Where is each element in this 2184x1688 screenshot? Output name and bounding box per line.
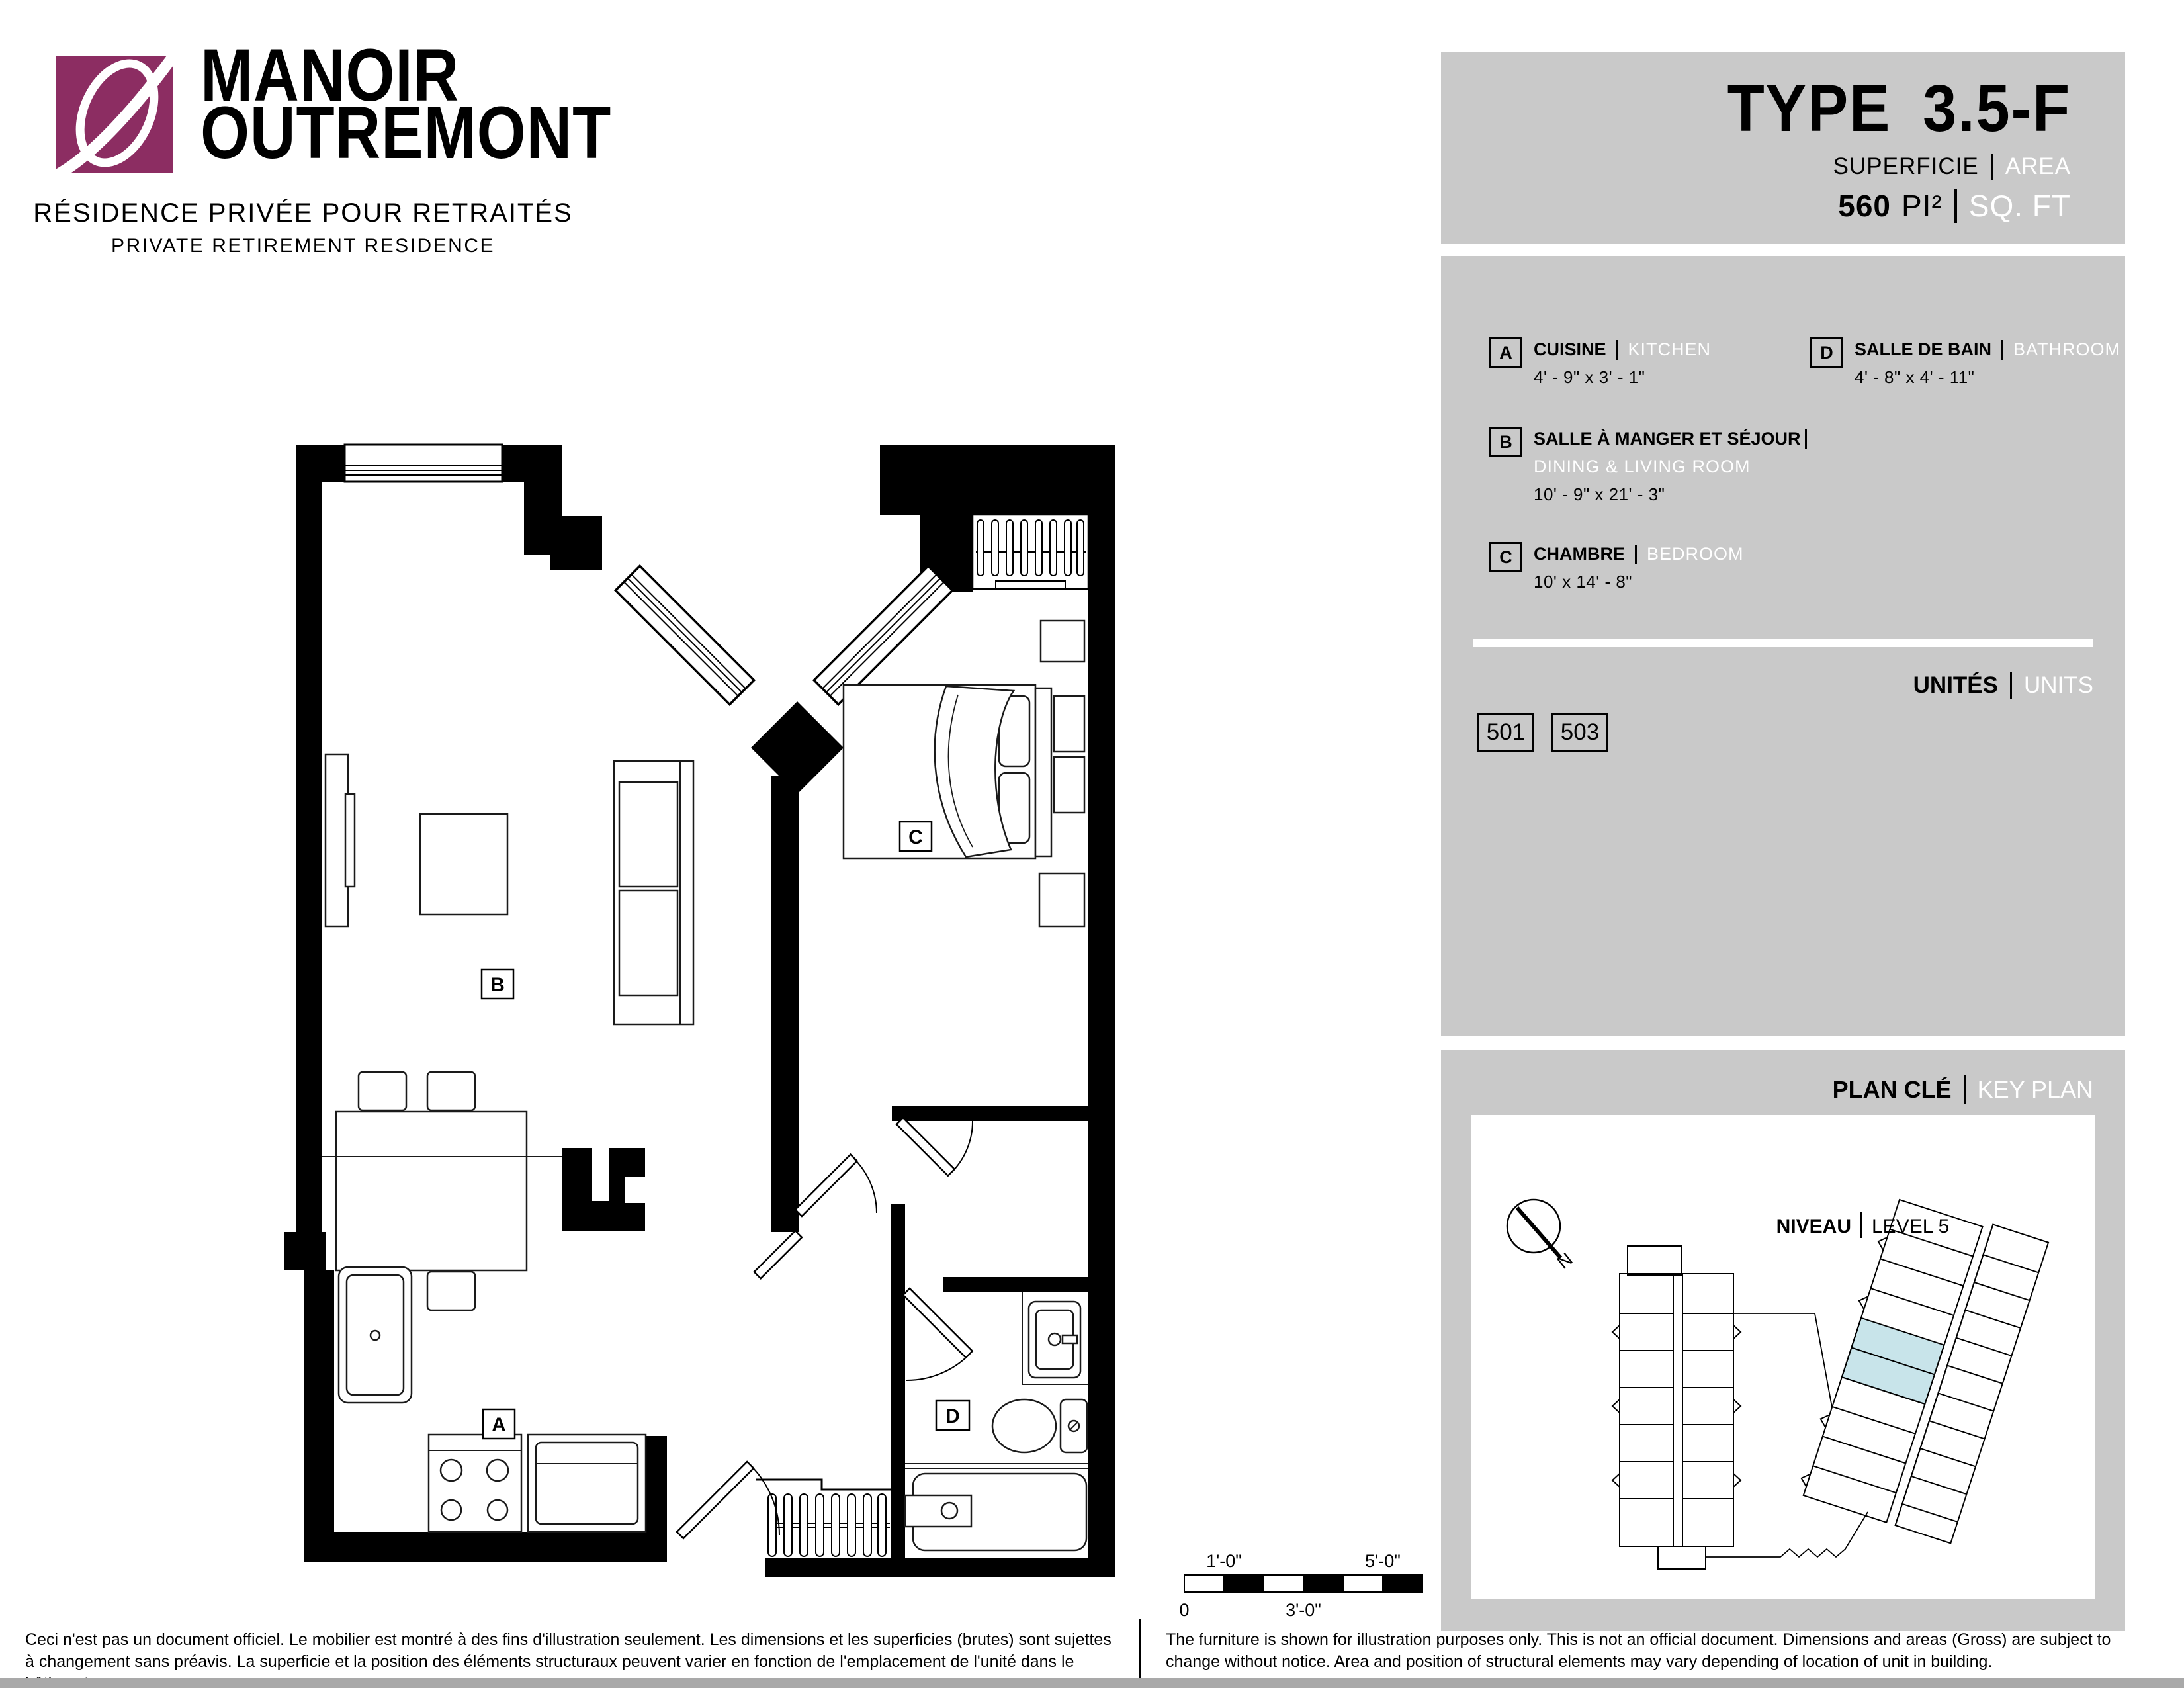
north-compass: N — [1507, 1200, 1577, 1273]
legend-key-C: C — [1489, 542, 1522, 572]
dining-table — [336, 1112, 527, 1270]
walls — [284, 445, 1115, 1577]
top-window — [345, 445, 502, 482]
bedroom-closet — [973, 515, 1088, 589]
area-label-en: AREA — [2005, 154, 2071, 180]
bathtub — [905, 1464, 1088, 1550]
dishwasher — [528, 1435, 646, 1532]
area-unit-fr: PI² — [1901, 188, 1943, 224]
legend-dims-A: 4' - 9" x 3' - 1" — [1534, 367, 1645, 388]
legend-panel: A CUISINE KITCHEN 4' - 9" x 3' - 1" D SA… — [1441, 256, 2125, 1036]
units-row: UNITÉS UNITS — [1913, 672, 2093, 699]
divider — [2001, 340, 2003, 360]
type-label: TYPE — [1727, 71, 1892, 147]
label-kitchen: A — [492, 1414, 506, 1436]
night-shelf — [1054, 757, 1084, 813]
divider — [1635, 545, 1637, 564]
divider — [2010, 672, 2012, 699]
legend-key-D: D — [1810, 337, 1843, 368]
toilet — [992, 1399, 1087, 1452]
area-value-row: 560 PI² SQ. FT — [1441, 188, 2071, 224]
night-shelf — [1041, 621, 1084, 662]
bedroom-furniture — [844, 621, 1084, 926]
scale-bar: 1'-0" 5'-0" 0 3'-0" — [1171, 1548, 1436, 1628]
units-label-en: UNITS — [2024, 672, 2093, 699]
unit-number-503: 503 — [1551, 713, 1608, 752]
legend-row-B-en: DINING & LIVING ROOM — [1534, 457, 1751, 477]
floor-plan-drawing: A B C D — [284, 410, 1138, 1581]
legend-key-A: A — [1489, 337, 1522, 368]
legend-dims-B: 10' - 9" x 21' - 3" — [1534, 484, 1665, 505]
brand-title-line2: OUTREMONT — [200, 104, 611, 161]
level-label-fr: NIVEAU — [1776, 1216, 1851, 1237]
keyplan-label-fr: PLAN CLÉ — [1833, 1076, 1952, 1104]
level-label-en: LEVEL 5 — [1872, 1216, 1949, 1237]
legend-row-D: SALLE DE BAIN BATHROOM — [1855, 339, 2120, 360]
legend-dims-D: 4' - 8" x 4' - 11" — [1855, 367, 1974, 388]
scale-label-3ft: 3'-0" — [1286, 1600, 1321, 1620]
divider — [1964, 1075, 1966, 1104]
brand-subtitle-fr: RÉSIDENCE PRIVÉE POUR RETRAITÉS — [0, 199, 606, 228]
angled-window-right — [814, 566, 952, 704]
disclaimer-divider — [1139, 1619, 1141, 1679]
area-label-row: SUPERFICIE AREA — [1441, 154, 2071, 180]
divider — [1991, 154, 1993, 180]
scale-label-5ft: 5'-0" — [1365, 1551, 1401, 1571]
area-unit-en: SQ. FT — [1969, 188, 2071, 224]
area-value: 560 — [1838, 188, 1891, 224]
keyplan-label-en: KEY PLAN — [1978, 1076, 2093, 1104]
scale-label-0: 0 — [1179, 1600, 1189, 1620]
label-bath: D — [945, 1405, 960, 1427]
kitchen-furniture — [339, 1267, 646, 1532]
brand-logo — [56, 56, 173, 173]
bathroom-furniture — [905, 1292, 1088, 1550]
label-living: B — [490, 974, 505, 996]
disclaimer-en: The furniture is shown for illustration … — [1166, 1629, 2162, 1673]
night-shelf — [1039, 873, 1084, 926]
type-value: 3.5-F — [1923, 71, 2071, 147]
type-title: TYPE 3.5-F — [1491, 71, 2071, 147]
coffee-table — [420, 814, 507, 914]
stove — [429, 1435, 521, 1532]
divider — [1954, 189, 1957, 223]
night-shelf — [1054, 696, 1084, 752]
legend-row-B: SALLE À MANGER ET SÉJOUR — [1534, 429, 1817, 449]
keyplan-right-wing — [1796, 1192, 2048, 1543]
angled-window-left — [615, 566, 754, 704]
scale-label-1ft: 1'-0" — [1206, 1551, 1242, 1571]
brand-subtitle-en: PRIVATE RETIREMENT RESIDENCE — [0, 235, 606, 257]
brand-title: MANOIR OUTREMONT — [200, 46, 611, 161]
headboard — [1035, 688, 1051, 856]
separator-bar — [1473, 639, 2093, 647]
keyplan-panel: PLAN CLÉ KEY PLAN N NIVEAU LEVEL 5 — [1441, 1050, 2125, 1631]
legend-key-B: B — [1489, 427, 1522, 457]
bath-sink — [1029, 1302, 1080, 1378]
kitchen-sink — [339, 1267, 412, 1403]
legend-dims-C: 10' x 14' - 8" — [1534, 572, 1632, 592]
type-panel: TYPE 3.5-F SUPERFICIE AREA 560 PI² SQ. F… — [1441, 52, 2125, 244]
keyplan-title: PLAN CLÉ KEY PLAN — [1833, 1075, 2093, 1104]
area-label-fr: SUPERFICIE — [1833, 154, 1979, 180]
units-label-fr: UNITÉS — [1913, 672, 1998, 699]
legend-row-A: CUISINE KITCHEN — [1534, 339, 1711, 360]
keyplan-left-wing — [1612, 1246, 1741, 1569]
divider — [1616, 340, 1618, 360]
entry-closet — [756, 1480, 891, 1556]
legend-row-C: CHAMBRE BEDROOM — [1534, 544, 1744, 564]
keyplan-canvas: N NIVEAU LEVEL 5 — [1471, 1115, 2095, 1599]
unit-number-501: 501 — [1477, 713, 1534, 752]
bottom-bar — [0, 1678, 2184, 1688]
sofa — [614, 761, 693, 1024]
floor-plan-sheet: MANOIR OUTREMONT RÉSIDENCE PRIVÉE POUR R… — [0, 0, 2184, 1688]
label-bedroom: C — [908, 826, 923, 848]
keyplan-drawing: N NIVEAU LEVEL 5 — [1471, 1115, 2095, 1599]
divider — [1805, 429, 1807, 449]
